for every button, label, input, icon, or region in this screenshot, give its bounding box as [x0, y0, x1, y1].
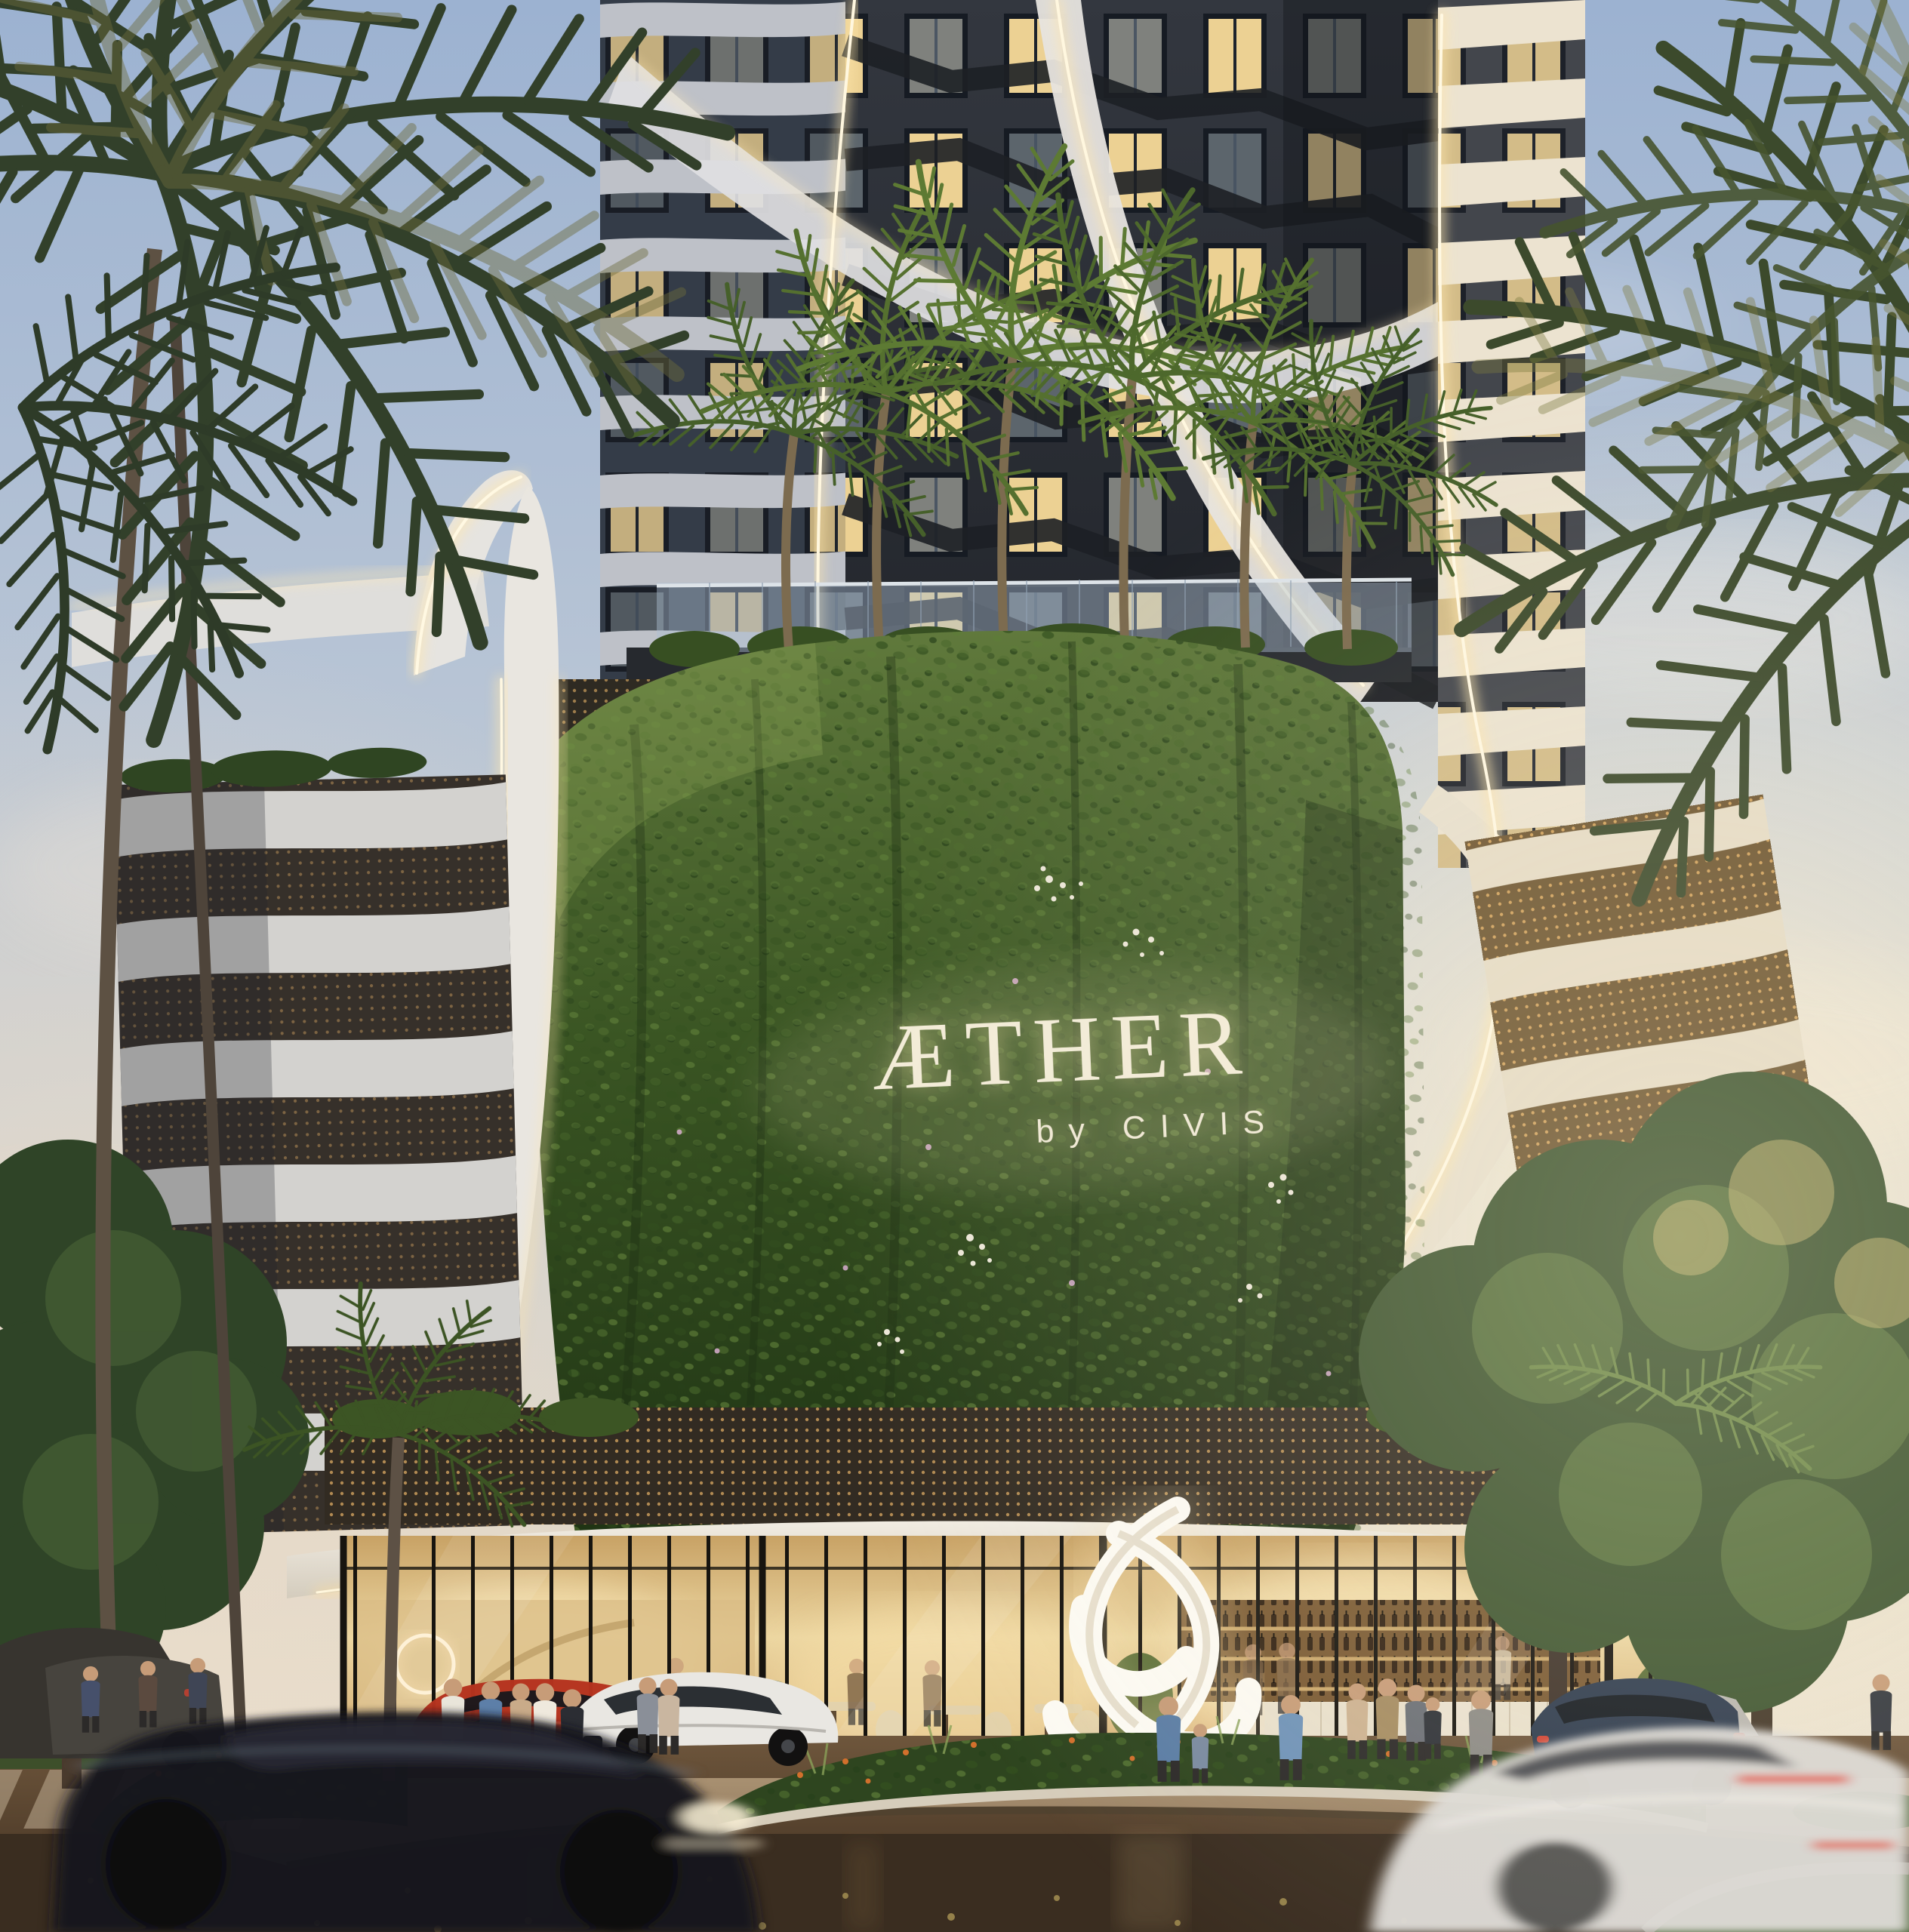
vignette-overlay	[0, 0, 1909, 1932]
scene-canvas: ÆTHER by CIVIS	[0, 0, 1909, 1932]
architectural-rendering: ÆTHER by CIVIS	[0, 0, 1909, 1932]
